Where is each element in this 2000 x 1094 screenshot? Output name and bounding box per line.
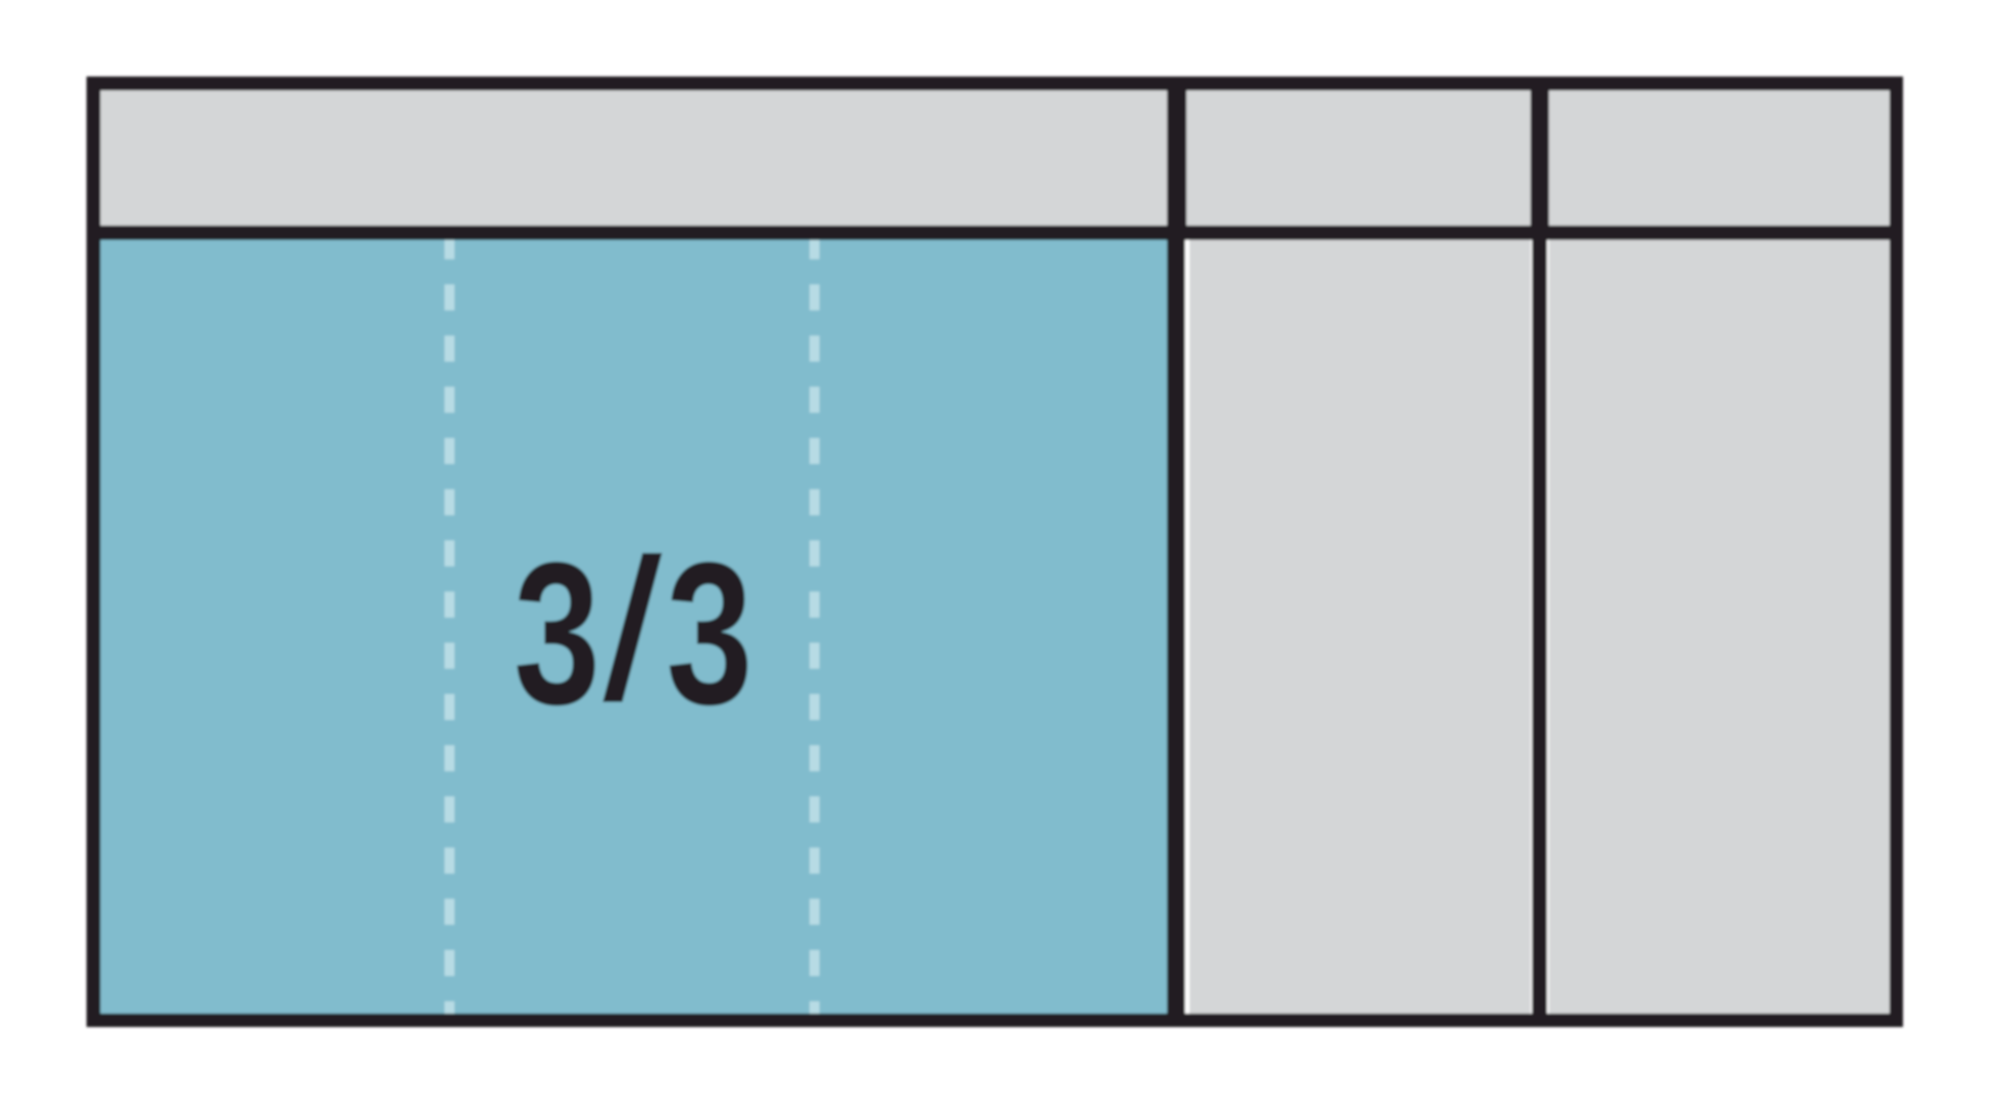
svg-text:3: 3 <box>513 521 600 747</box>
svg-text:3: 3 <box>666 521 753 747</box>
